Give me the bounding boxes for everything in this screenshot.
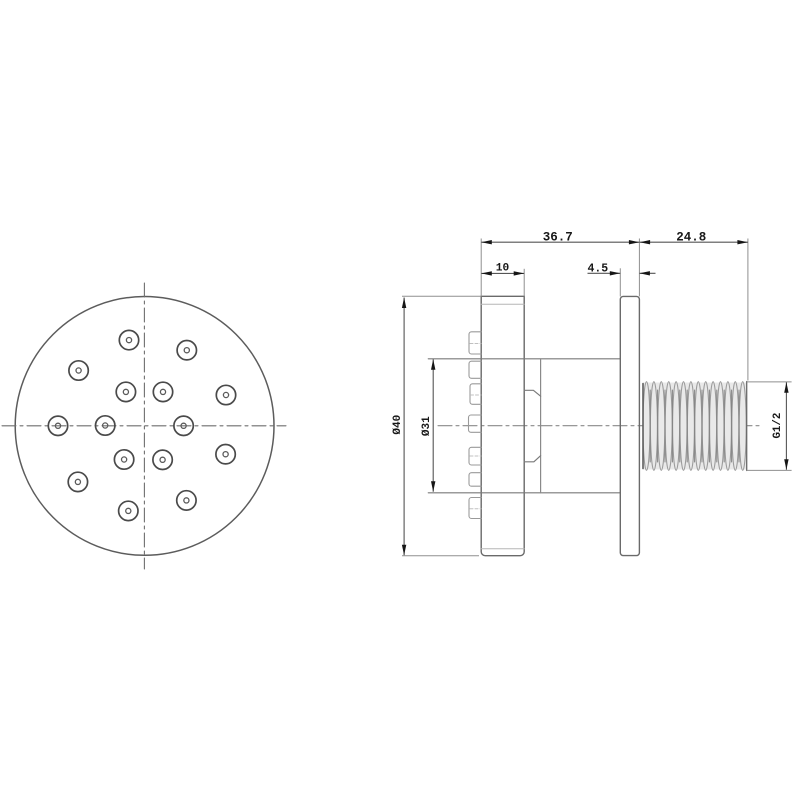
svg-text:10: 10 <box>496 262 510 274</box>
svg-text:24.8: 24.8 <box>676 231 706 245</box>
svg-text:4.5: 4.5 <box>587 262 608 275</box>
svg-text:Ø31: Ø31 <box>421 416 433 436</box>
svg-text:G1/2: G1/2 <box>772 413 784 439</box>
svg-text:Ø40: Ø40 <box>392 415 404 435</box>
svg-text:36.7: 36.7 <box>543 231 573 245</box>
